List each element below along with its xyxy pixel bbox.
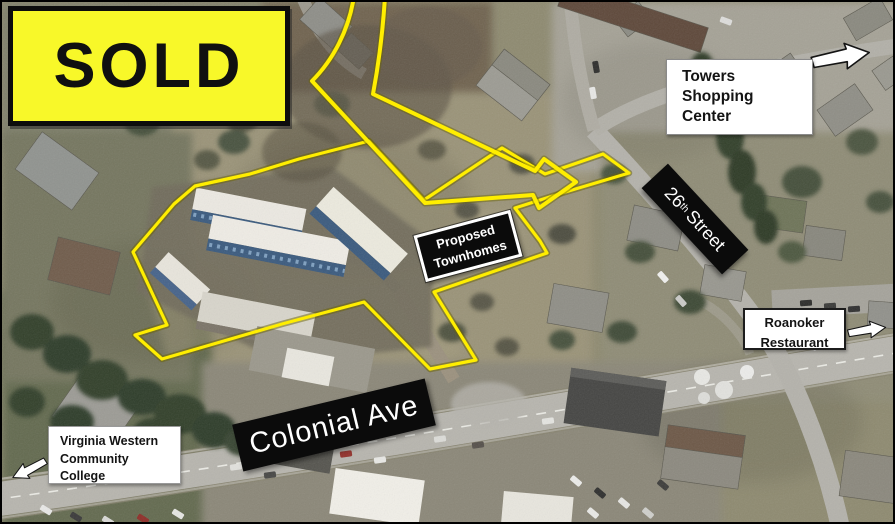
sold-banner: SOLD (8, 6, 290, 126)
virginia-western-label: Virginia Western Community College (48, 426, 181, 484)
roanoker-restaurant-label: Roanoker Restaurant (743, 308, 846, 350)
sold-text: SOLD (53, 30, 244, 102)
aerial-map: SOLD Towers Shopping Center Roanoker Res… (0, 0, 895, 524)
towers-shopping-center-label: Towers Shopping Center (666, 59, 813, 135)
